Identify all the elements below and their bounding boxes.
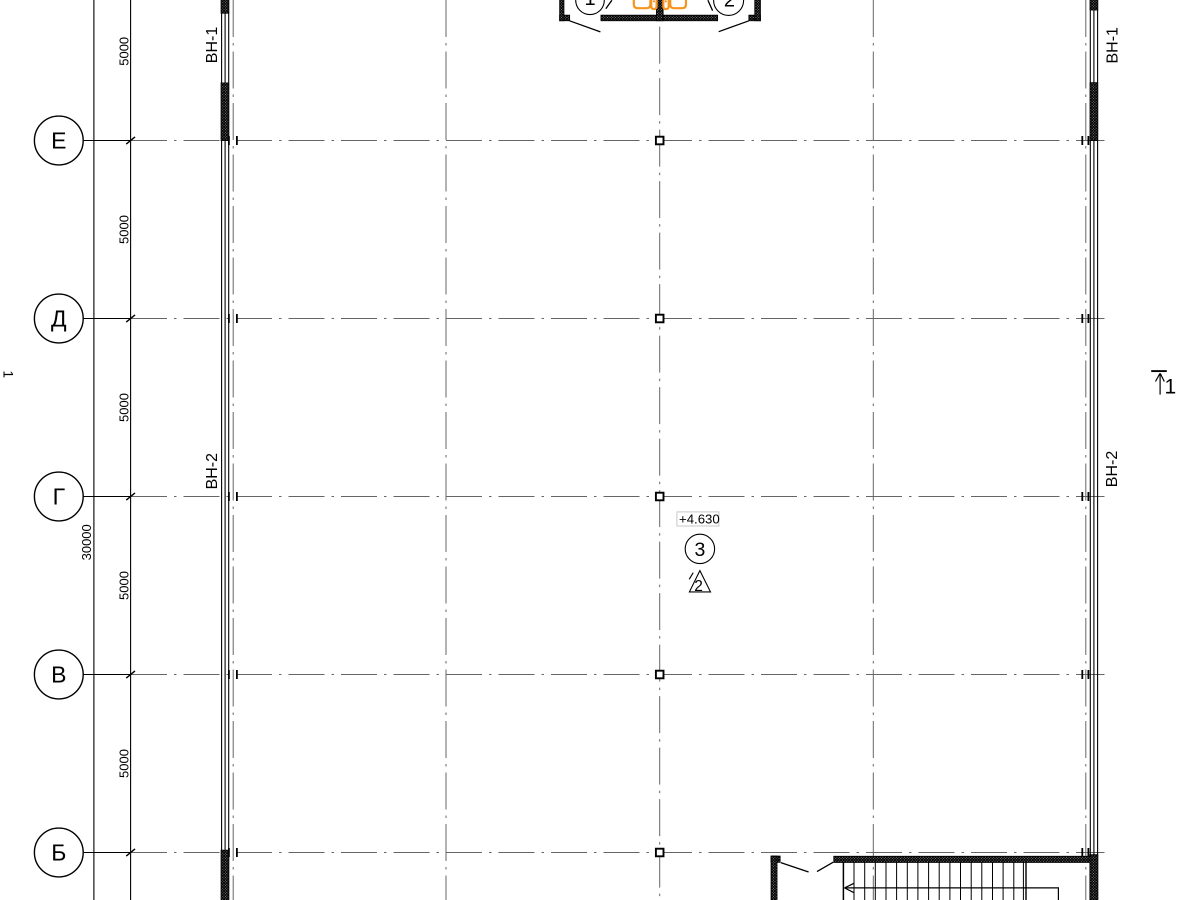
svg-text:ВН-2: ВН-2 — [1104, 451, 1121, 488]
svg-text:ВН-2: ВН-2 — [204, 453, 221, 490]
svg-text:1: 1 — [1165, 376, 1177, 399]
svg-text:Б: Б — [51, 840, 66, 866]
svg-text:Е: Е — [51, 128, 66, 154]
svg-text:В: В — [51, 662, 66, 688]
svg-text:Г: Г — [53, 484, 66, 510]
svg-text:2: 2 — [694, 578, 703, 595]
svg-text:5000: 5000 — [117, 37, 132, 66]
svg-text:ВН-1: ВН-1 — [204, 27, 221, 64]
svg-text:+4.630: +4.630 — [679, 511, 720, 526]
svg-text:1: 1 — [584, 0, 595, 10]
svg-text:ВН-1: ВН-1 — [1104, 27, 1121, 64]
svg-text:5000: 5000 — [117, 215, 132, 244]
svg-text:5000: 5000 — [117, 393, 132, 422]
svg-text:2: 2 — [724, 0, 735, 12]
svg-text:3: 3 — [694, 539, 705, 561]
svg-text:Д: Д — [51, 306, 67, 332]
svg-text:5000: 5000 — [117, 571, 132, 600]
svg-text:5000: 5000 — [117, 749, 132, 778]
svg-text:30000: 30000 — [79, 524, 94, 560]
svg-text:1: 1 — [0, 371, 15, 379]
